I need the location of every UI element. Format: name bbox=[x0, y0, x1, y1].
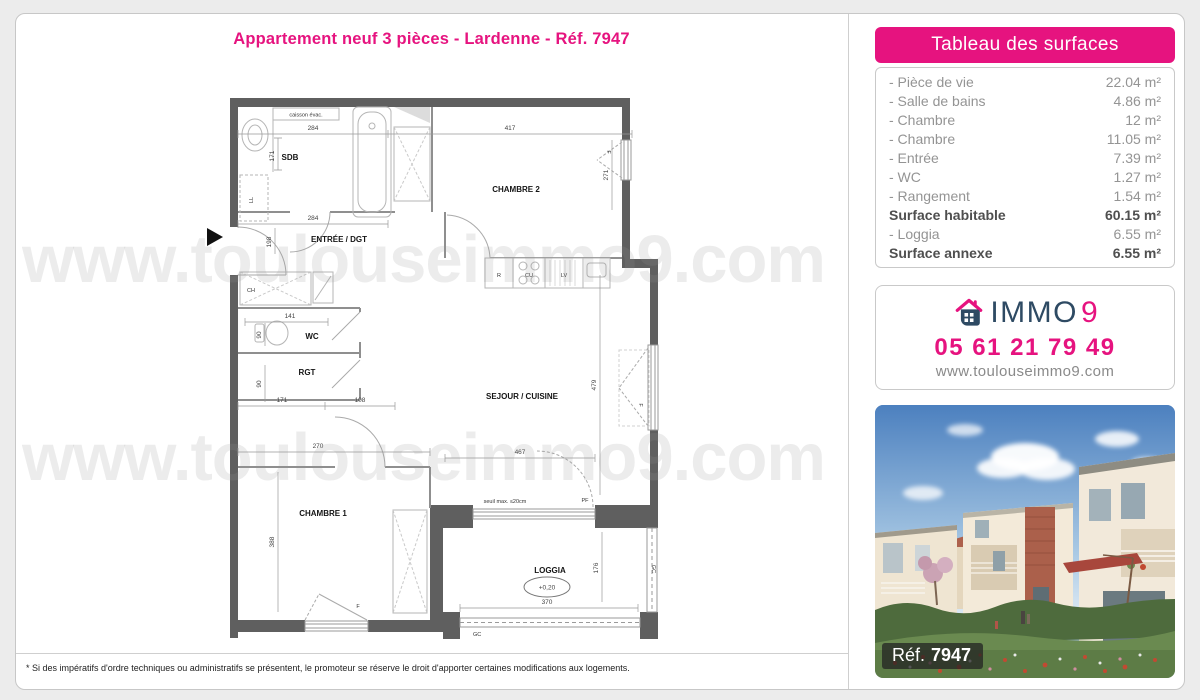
dim-label: 479 bbox=[591, 379, 598, 390]
dim-label: 176 bbox=[593, 562, 600, 573]
ref-label: Réf. bbox=[892, 645, 925, 665]
pf-label: PF bbox=[581, 498, 589, 504]
room-label-wc: WC bbox=[305, 332, 319, 341]
seuil-label: seuil max. ≤20cm bbox=[484, 499, 527, 505]
ch-label: CH bbox=[247, 288, 255, 294]
disclaimer-divider bbox=[16, 653, 848, 654]
surface-label: Surface habitable bbox=[889, 206, 1006, 225]
room-label-rgt: RGT bbox=[299, 368, 316, 377]
surface-label: - Rangement bbox=[889, 187, 970, 206]
surface-value: 1.27 m² bbox=[1114, 168, 1161, 187]
room-label-entree: ENTRÉE / DGT bbox=[311, 235, 367, 244]
sink bbox=[242, 119, 268, 151]
surface-row: - Rangement1.54 m² bbox=[889, 187, 1161, 206]
surface-label: - Entrée bbox=[889, 149, 939, 168]
kitchen-cu-label: CU bbox=[525, 273, 533, 279]
window-f-label: F bbox=[356, 604, 360, 610]
dim-label: 467 bbox=[515, 449, 526, 456]
ref-number: 7947 bbox=[931, 645, 971, 665]
surface-row-total: Surface annexe6.55 m² bbox=[889, 244, 1161, 263]
fixtures bbox=[240, 107, 649, 613]
page: Appartement neuf 3 pièces - Lardenne - R… bbox=[0, 0, 1200, 700]
dim-label: 171 bbox=[269, 150, 276, 161]
kitchen-lv-label: LV bbox=[561, 273, 568, 279]
dim-label: 141 bbox=[285, 313, 296, 320]
surface-value: 1.54 m² bbox=[1114, 187, 1161, 206]
surfaces-header: Tableau des surfaces bbox=[875, 27, 1175, 63]
toilet bbox=[266, 321, 288, 345]
surface-label: - WC bbox=[889, 168, 921, 187]
window-f-label: F bbox=[605, 150, 611, 154]
dim-label: 284 bbox=[308, 125, 319, 132]
surface-value: 22.04 m² bbox=[1106, 73, 1161, 92]
agency-website[interactable]: www.toulouseimmo9.com bbox=[936, 363, 1114, 380]
surface-value: 6.55 m² bbox=[1113, 244, 1161, 263]
dim-label: 90 bbox=[256, 380, 263, 388]
floorplan-svg: 284 417 171 271 284 198 141 90 90 171 10… bbox=[195, 90, 665, 645]
dim-label: 370 bbox=[542, 599, 553, 606]
dim-label: 388 bbox=[269, 536, 276, 547]
house-icon bbox=[951, 295, 987, 331]
room-label-sejour: SEJOUR / CUISINE bbox=[486, 392, 559, 401]
agency-card: IMMO9 05 61 21 79 49 www.toulouseimmo9.c… bbox=[875, 285, 1175, 390]
surface-label: - Chambre bbox=[889, 130, 955, 149]
level-label: +0,20 bbox=[539, 585, 556, 592]
window-f-label: F bbox=[637, 403, 643, 407]
surface-label: - Salle de bains bbox=[889, 92, 986, 111]
gc-label: GC bbox=[473, 632, 481, 638]
entrance-arrow-icon bbox=[207, 228, 223, 246]
surface-label: - Pièce de vie bbox=[889, 73, 974, 92]
dim-label: 90 bbox=[256, 331, 263, 339]
surface-value: 12 m² bbox=[1125, 111, 1161, 130]
surface-row: - Loggia6.55 m² bbox=[889, 225, 1161, 244]
gc-label: GC bbox=[650, 565, 656, 573]
floorplan: 284 417 171 271 284 198 141 90 90 171 10… bbox=[195, 90, 665, 645]
surface-row: - Salle de bains4.86 m² bbox=[889, 92, 1161, 111]
surface-value: 60.15 m² bbox=[1105, 206, 1161, 225]
dim-label: 284 bbox=[308, 215, 319, 222]
outer-walls bbox=[230, 98, 658, 639]
surface-row: - Chambre11.05 m² bbox=[889, 130, 1161, 149]
disclaimer: * Si des impératifs d'ordre techniques o… bbox=[26, 663, 836, 673]
dim-label: 417 bbox=[505, 125, 516, 132]
residence-photo bbox=[875, 405, 1175, 678]
agency-logo: IMMO9 bbox=[951, 295, 1098, 331]
dim-label: 108 bbox=[355, 397, 366, 404]
room-label-sdb: SDB bbox=[282, 153, 299, 162]
surface-row: - Entrée7.39 m² bbox=[889, 149, 1161, 168]
surface-label: - Loggia bbox=[889, 225, 940, 244]
surface-label: Surface annexe bbox=[889, 244, 993, 263]
window-recess bbox=[619, 350, 649, 426]
agency-phone[interactable]: 05 61 21 79 49 bbox=[934, 334, 1115, 362]
ll-label: LL bbox=[249, 197, 255, 203]
kitchen-r-label: R bbox=[497, 273, 501, 279]
loggia-railing bbox=[460, 528, 657, 627]
surface-row: - WC1.27 m² bbox=[889, 168, 1161, 187]
surface-value: 4.86 m² bbox=[1114, 92, 1161, 111]
brand-9: 9 bbox=[1081, 296, 1099, 330]
room-label-chambre2: CHAMBRE 2 bbox=[492, 185, 540, 194]
windows bbox=[305, 140, 658, 631]
surface-label: - Chambre bbox=[889, 111, 955, 130]
dim-label: 271 bbox=[603, 169, 610, 180]
shelf bbox=[394, 107, 430, 123]
ref-badge: Réf.7947 bbox=[882, 643, 983, 669]
surface-value: 6.55 m² bbox=[1114, 225, 1161, 244]
surfaces-table: - Pièce de vie22.04 m² - Salle de bains4… bbox=[875, 67, 1175, 268]
photo-card[interactable]: Réf.7947 bbox=[875, 405, 1175, 678]
brand-immo: IMMO bbox=[990, 296, 1078, 330]
dim-label: 171 bbox=[277, 397, 288, 404]
surface-row: - Pièce de vie22.04 m² bbox=[889, 73, 1161, 92]
room-label-loggia: LOGGIA bbox=[534, 566, 566, 575]
surface-row-total: Surface habitable60.15 m² bbox=[889, 206, 1161, 225]
dim-label: 270 bbox=[313, 443, 324, 450]
surface-value: 11.05 m² bbox=[1107, 130, 1161, 149]
dim-label: 198 bbox=[266, 236, 273, 247]
surface-value: 7.39 m² bbox=[1114, 149, 1161, 168]
surface-row: - Chambre12 m² bbox=[889, 111, 1161, 130]
column-divider bbox=[848, 14, 849, 689]
room-label-chambre1: CHAMBRE 1 bbox=[299, 509, 347, 518]
page-title: Appartement neuf 3 pièces - Lardenne - R… bbox=[15, 30, 848, 49]
caisson-label: caisson évac. bbox=[289, 113, 323, 119]
